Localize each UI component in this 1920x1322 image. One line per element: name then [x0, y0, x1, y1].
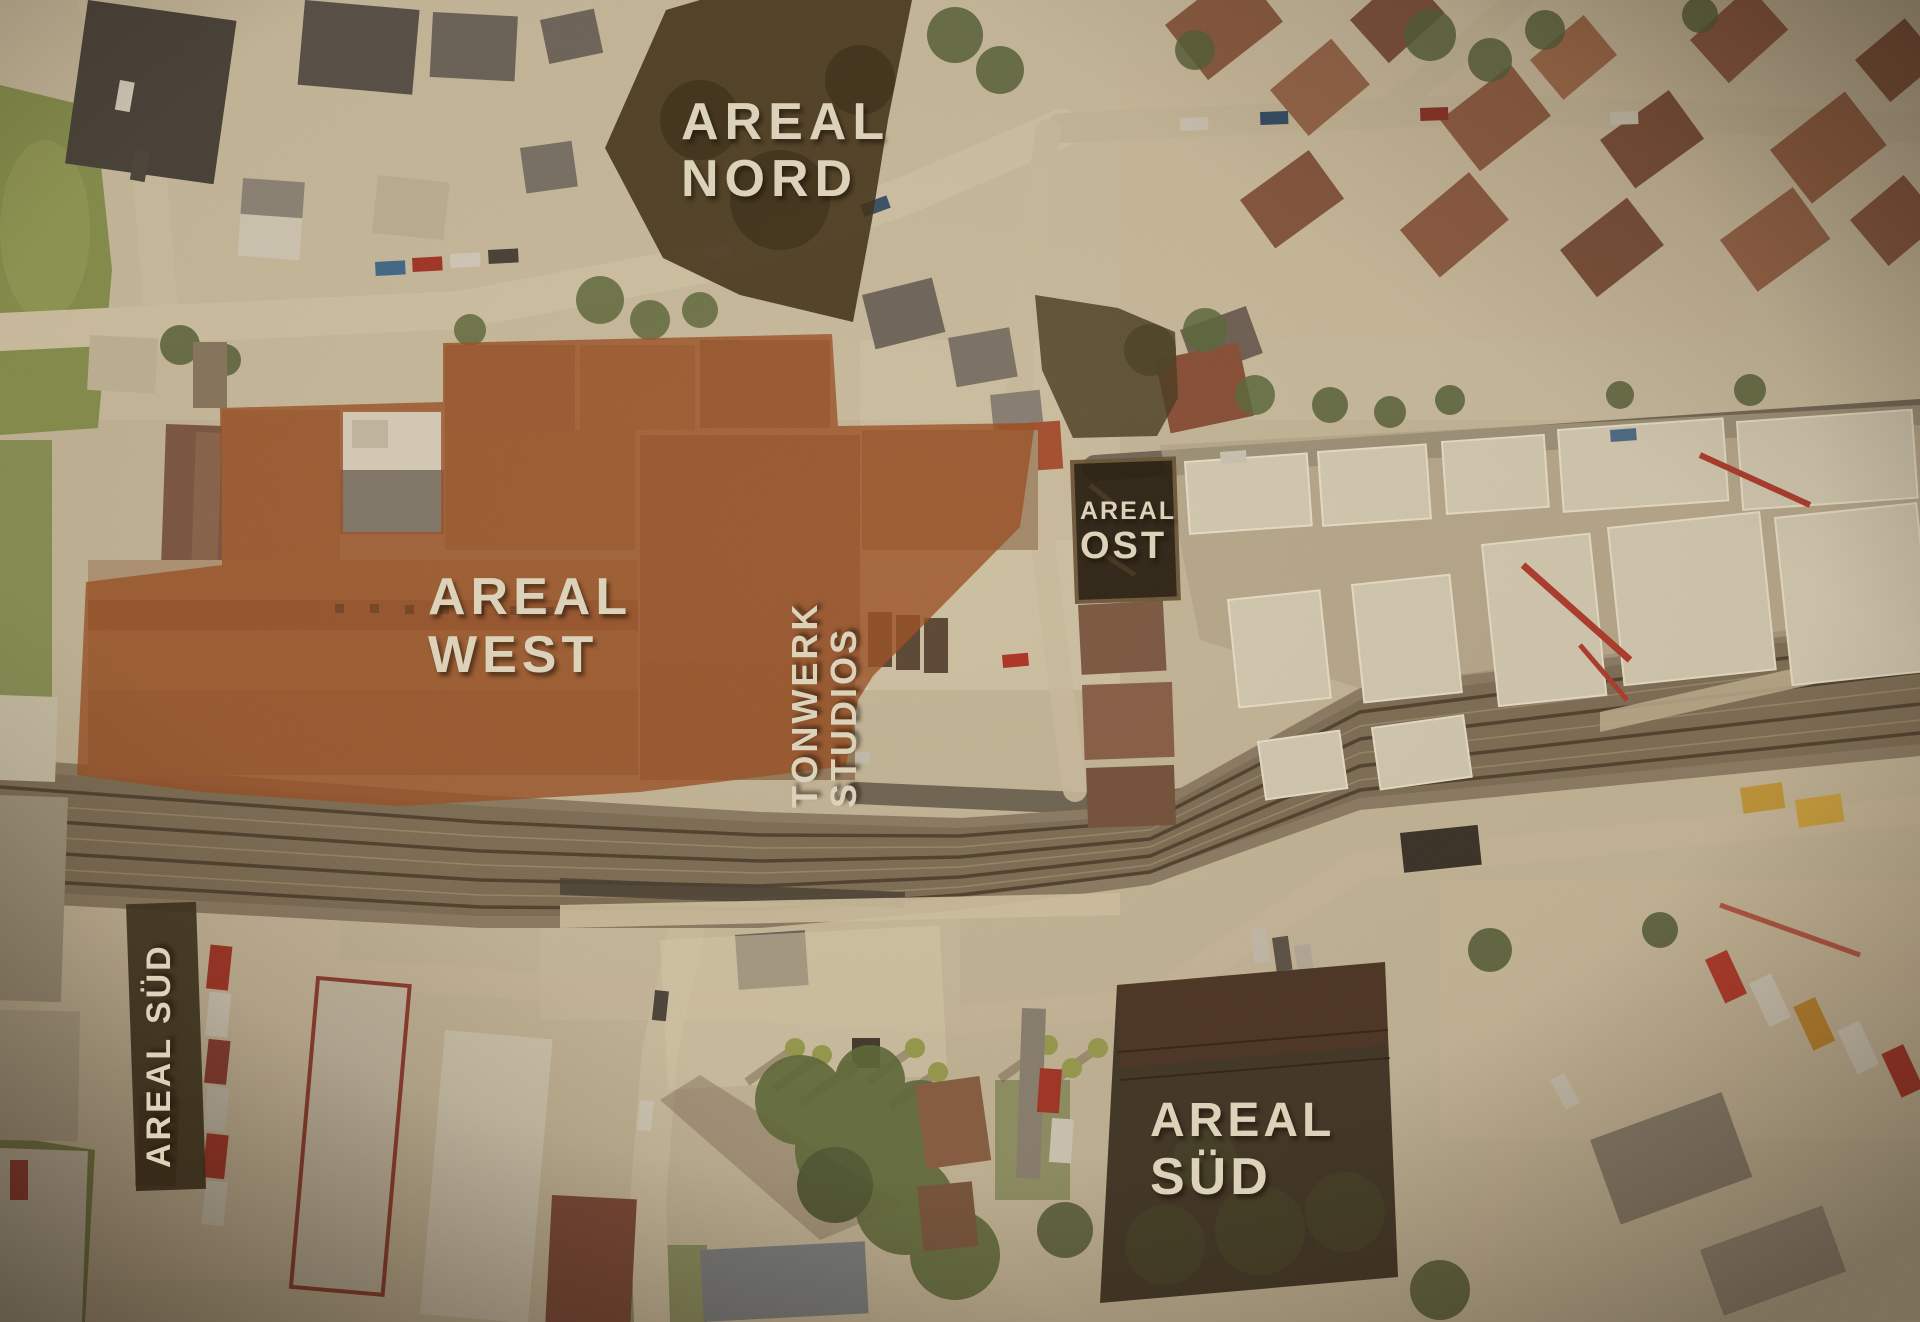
area-label-areal-ost[interactable]: AREAL OST — [1080, 497, 1176, 567]
tonwerk-line2: STUDIOS — [824, 602, 863, 808]
areal-sued-right-line1: AREAL — [1150, 1094, 1335, 1148]
area-label-areal-nord[interactable]: AREAL NORD — [681, 94, 890, 208]
aerial-photo-base — [0, 0, 1920, 1322]
vignette — [0, 0, 1920, 1322]
areal-ost-line1: AREAL — [1080, 497, 1176, 525]
areal-sued-left-text: AREAL SÜD — [141, 943, 178, 1168]
site-plan-map: AREAL NORD AREAL WEST TONWERK STUDIOS AR… — [0, 0, 1920, 1322]
area-label-tonwerk-studios[interactable]: TONWERK STUDIOS — [785, 602, 863, 808]
areal-west-line1: AREAL — [428, 568, 632, 626]
areal-ost-line2: OST — [1080, 525, 1176, 567]
areal-nord-line1: AREAL — [681, 94, 890, 151]
area-label-areal-sued-left[interactable]: AREAL SÜD — [141, 943, 178, 1168]
areal-nord-line2: NORD — [681, 151, 890, 208]
area-label-areal-sued-right[interactable]: AREAL SÜD — [1150, 1094, 1335, 1206]
areal-sued-right-line2: SÜD — [1150, 1148, 1335, 1206]
areal-west-line2: WEST — [428, 626, 632, 684]
area-label-areal-west[interactable]: AREAL WEST — [428, 568, 632, 684]
tonwerk-line1: TONWERK — [785, 602, 824, 808]
